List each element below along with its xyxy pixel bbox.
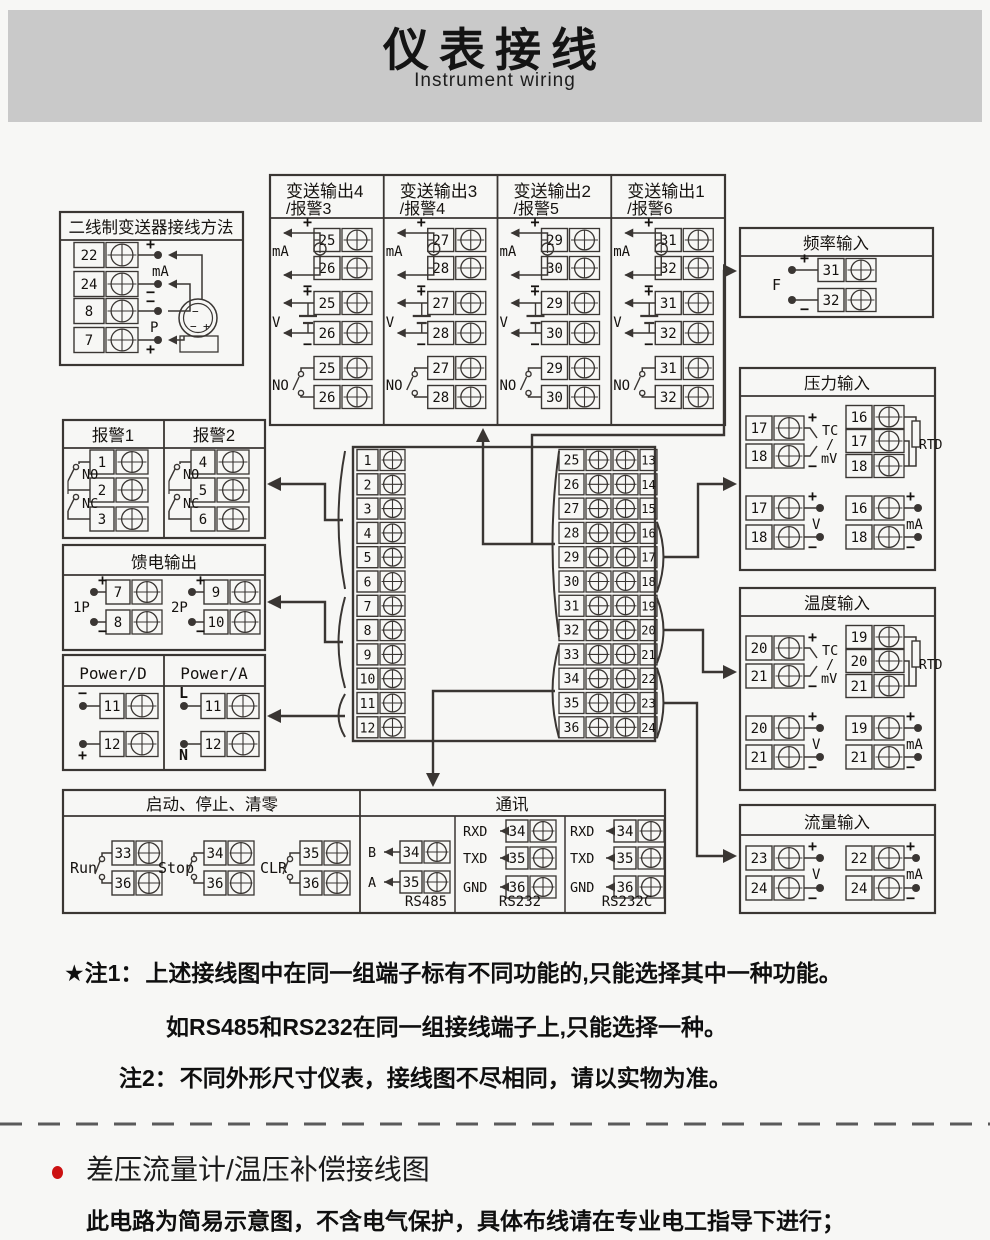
note2-line: 注2：不同外形尺寸仪表，接线图不尽相同，请以实物为准。 <box>119 1059 976 1093</box>
label: + <box>906 707 915 725</box>
terminal-number: 22 <box>641 672 655 686</box>
terminal-number: 9 <box>364 648 372 663</box>
terminal-number: 24 <box>751 881 768 897</box>
wire <box>170 255 202 299</box>
label: − <box>808 538 817 556</box>
signal-arrowhead <box>624 299 633 308</box>
arrowhead <box>723 477 737 491</box>
terminal-number: 7 <box>364 600 372 615</box>
junction-dot <box>154 251 162 259</box>
arrowhead <box>476 428 490 442</box>
wire <box>415 368 428 371</box>
junction-dot <box>816 884 824 892</box>
group-brace <box>657 598 664 663</box>
wire <box>301 396 314 397</box>
wire <box>290 853 300 856</box>
label: mA <box>906 867 923 883</box>
box-title: 启动、停止、清零 <box>146 795 279 814</box>
label: − <box>78 684 87 702</box>
label: V <box>386 315 395 331</box>
label: − <box>808 758 817 776</box>
terminal-number: 36 <box>564 721 580 736</box>
terminal-number: 27 <box>432 233 449 249</box>
terminal-number: 28 <box>432 326 449 342</box>
terminal-number: 30 <box>564 575 580 590</box>
terminal-number: 6 <box>364 576 372 591</box>
signal-arrowhead <box>168 251 177 260</box>
signal-arrowhead <box>511 271 520 280</box>
label: − <box>192 305 199 318</box>
note2-head: 注2： <box>119 1065 178 1091</box>
label: − <box>146 292 155 310</box>
label: − <box>800 300 809 318</box>
signal-arrowhead <box>168 280 177 289</box>
signal-label: TXD <box>570 851 594 867</box>
label: − <box>808 457 817 475</box>
signal-arrowhead <box>397 329 406 338</box>
terminal-number: 12 <box>104 737 121 753</box>
terminal-number: 36 <box>207 876 224 892</box>
terminal-number: 29 <box>546 296 563 312</box>
label: N <box>179 746 188 764</box>
terminal-number: 27 <box>432 296 449 312</box>
wire <box>634 377 640 390</box>
label: L <box>179 684 188 702</box>
terminal-number: 3 <box>98 512 106 528</box>
contact-point <box>298 371 303 376</box>
label: NO <box>183 467 199 483</box>
terminal-number: 27 <box>564 502 580 517</box>
terminal-number: 8 <box>364 624 372 639</box>
terminal-number: 33 <box>115 846 132 862</box>
signal-arrowhead <box>511 329 520 338</box>
label: mV <box>821 451 837 467</box>
terminal-number: 5 <box>199 483 207 499</box>
label: + <box>800 249 809 267</box>
wire <box>804 648 817 658</box>
terminal-number: 17 <box>641 551 655 565</box>
wire <box>904 667 916 686</box>
signal-arrowhead <box>283 271 292 280</box>
label: NC <box>82 496 98 512</box>
terminal-number: 28 <box>432 390 449 406</box>
wire <box>168 284 190 311</box>
terminal-number: 15 <box>641 502 655 516</box>
terminal-number: 16 <box>851 501 868 517</box>
label: + <box>417 282 426 300</box>
note1-line1: ★注1：上述接线图中在同一组端子标有不同功能的,只能选择其中一种功能。 <box>64 954 976 988</box>
terminal-number: 19 <box>851 721 868 737</box>
protocol-label: RS485 <box>405 894 447 910</box>
box-title: 报警1 <box>92 426 134 445</box>
label: NO <box>272 378 289 394</box>
label: mA <box>906 517 923 533</box>
note1-text: 上述接线图中在同一组端子标有不同功能的,只能选择其中一种功能。 <box>145 960 841 986</box>
junction-dot <box>816 724 824 732</box>
wire <box>79 462 90 464</box>
contact-point <box>412 371 417 376</box>
terminal-number: 14 <box>641 478 655 492</box>
terminal-number: 4 <box>364 527 372 542</box>
box-title: 压力输入 <box>804 374 870 393</box>
terminal-number: 18 <box>751 449 768 465</box>
terminal-number: 32 <box>660 390 677 406</box>
terminal-number: 25 <box>319 361 336 377</box>
transmitter-flange <box>180 336 218 352</box>
signal-arrowhead <box>168 336 177 345</box>
wire <box>169 469 175 481</box>
junction-dot <box>816 854 824 862</box>
terminal-number: 23 <box>641 697 655 711</box>
terminal-number: 21 <box>851 750 868 766</box>
contact-point <box>640 371 645 376</box>
label: + <box>906 487 915 505</box>
terminal-number: 34 <box>564 672 580 687</box>
terminal-number: 34 <box>403 845 420 861</box>
terminal-number: 20 <box>751 641 768 657</box>
label: NO <box>500 378 517 394</box>
contact-point <box>174 464 179 469</box>
label: mA <box>906 737 923 753</box>
signal-arrowhead <box>511 229 520 238</box>
note2-text: 不同外形尺寸仪表，接线图不尽相同，请以实物为准。 <box>180 1065 732 1091</box>
terminal-number: 17 <box>751 501 768 517</box>
connector-line <box>433 691 555 782</box>
junction-dot <box>180 702 188 710</box>
caution-text: 此电路为简易示意图，不含电气保护，具体布线请在专业电工指导下进行； <box>86 1202 845 1236</box>
terminal-number: 12 <box>205 737 222 753</box>
wire <box>804 446 817 456</box>
terminal-number: 25 <box>564 454 580 469</box>
label: + <box>98 571 107 589</box>
label: mV <box>821 671 837 687</box>
label: mA <box>272 244 289 260</box>
wire <box>102 880 112 883</box>
note1-head: ★注1： <box>64 960 143 986</box>
protocol-label: RS232 <box>499 894 541 910</box>
terminal-number: 6 <box>199 512 207 528</box>
wire <box>904 661 909 686</box>
terminal-number: 26 <box>564 478 580 493</box>
contact-point <box>73 464 78 469</box>
terminal-number: 16 <box>851 410 868 426</box>
arrowhead <box>267 709 281 723</box>
terminal-number: 1 <box>98 455 106 471</box>
junction-dot <box>816 504 824 512</box>
terminal-number: 11 <box>205 699 222 715</box>
terminal-number: 20 <box>851 654 868 670</box>
connector-line <box>663 630 732 672</box>
contact-point <box>640 390 645 395</box>
label: P <box>150 320 158 336</box>
terminal-number: 8 <box>85 304 93 320</box>
label: + <box>644 213 653 231</box>
junction-dot <box>788 296 796 304</box>
label: + <box>146 235 155 253</box>
label: − <box>906 889 915 907</box>
junction-dot <box>154 280 162 288</box>
terminal-number: 10 <box>208 615 225 631</box>
junction-dot <box>914 504 922 512</box>
terminal-number: 35 <box>303 846 320 862</box>
group-brace <box>657 668 664 738</box>
column-title: 变送输出2 <box>514 182 591 201</box>
wire <box>194 853 204 856</box>
terminal-number: 4 <box>199 455 207 471</box>
arrowhead <box>723 665 737 679</box>
signal-arrowhead <box>384 878 393 887</box>
label: 1P <box>73 600 90 616</box>
terminal-number: 29 <box>546 361 563 377</box>
terminal-number: 30 <box>546 390 563 406</box>
signal-label: B <box>368 845 376 861</box>
box-title: Power/A <box>180 664 248 683</box>
terminal-number: 31 <box>660 296 677 312</box>
label: mA <box>386 244 403 260</box>
label: + <box>203 320 210 333</box>
signal-label: RXD <box>570 824 594 840</box>
label: RTD <box>919 438 943 453</box>
signal-arrowhead <box>397 229 406 238</box>
contact-point <box>298 390 303 395</box>
wire <box>180 462 191 464</box>
signal-arrowhead <box>624 329 633 338</box>
signal-arrowhead <box>397 271 406 280</box>
column-title: 变送输出1 <box>627 182 704 201</box>
label: − <box>906 538 915 556</box>
wire <box>290 880 300 883</box>
wire <box>293 377 299 390</box>
label: − <box>417 335 426 353</box>
signal-arrowhead <box>624 229 633 238</box>
label: − <box>196 622 205 640</box>
terminal-number: 18 <box>851 459 868 475</box>
label: NC <box>183 496 199 512</box>
junction-dot <box>912 854 920 862</box>
terminal-number: 17 <box>851 434 868 450</box>
terminal-number: 26 <box>319 326 336 342</box>
contact-point <box>191 874 196 879</box>
junction-dot <box>154 307 162 315</box>
label: + <box>808 837 817 855</box>
terminal-number: 32 <box>564 624 580 639</box>
junction-dot <box>788 266 796 274</box>
terminal-number: 25 <box>319 233 336 249</box>
arrowhead <box>267 595 281 609</box>
terminal-number: 29 <box>546 233 563 249</box>
signal-arrowhead <box>283 229 292 238</box>
terminal-number: 21 <box>751 669 768 685</box>
junction-dot <box>914 753 922 761</box>
terminal-number: 11 <box>104 699 121 715</box>
contact-point <box>287 874 292 879</box>
signal-arrowhead <box>624 271 633 280</box>
label: − <box>808 677 817 695</box>
label: 2P <box>171 600 188 616</box>
wire <box>642 368 655 371</box>
group-brace <box>553 451 560 637</box>
label: V <box>812 867 821 883</box>
terminal-number: 3 <box>364 503 372 518</box>
label: − <box>644 335 653 353</box>
signal-arrowhead <box>511 299 520 308</box>
terminal-number: 32 <box>823 293 840 309</box>
box-title: 流量输入 <box>804 813 870 832</box>
contact-point <box>73 494 78 499</box>
bullet-icon <box>52 1166 63 1179</box>
label: + <box>303 213 312 231</box>
wire <box>194 880 204 883</box>
label: − <box>906 758 915 776</box>
label: + <box>644 282 653 300</box>
arrowhead <box>723 849 737 863</box>
label: + <box>146 340 155 358</box>
junction-dot <box>816 533 824 541</box>
label: NO <box>82 467 98 483</box>
terminal-number: 30 <box>546 326 563 342</box>
signal-label: RXD <box>463 824 487 840</box>
terminal-number: 34 <box>207 846 224 862</box>
label: − <box>190 320 197 333</box>
signal-label: TXD <box>463 851 487 867</box>
terminal-number: 17 <box>751 421 768 437</box>
terminal-number: 29 <box>564 551 580 566</box>
label: + <box>808 707 817 725</box>
label: RTD <box>919 658 943 673</box>
notes-block: ★注1：上述接线图中在同一组端子标有不同功能的,只能选择其中一种功能。 如RS4… <box>64 954 976 1093</box>
terminal-number: 28 <box>564 526 580 541</box>
box-title: 频率输入 <box>803 234 869 253</box>
wire <box>407 377 413 390</box>
terminal-number: 35 <box>617 851 634 867</box>
box-title: 馈电输出 <box>131 553 197 572</box>
wire <box>904 441 909 466</box>
terminal-number: 26 <box>319 261 336 277</box>
label: + <box>906 837 915 855</box>
wire <box>415 396 428 397</box>
terminal-number: 24 <box>851 881 868 897</box>
wire <box>521 377 527 390</box>
terminal-number: 25 <box>319 296 336 312</box>
group-brace <box>553 645 560 738</box>
label: + <box>417 213 426 231</box>
column-title: 变送输出3 <box>400 182 477 201</box>
label: F <box>772 276 781 294</box>
section-heading: 差压流量计/温压补偿接线图 <box>86 1148 430 1188</box>
junction-dot <box>188 588 196 596</box>
terminal-number: 11 <box>360 697 376 712</box>
contact-point <box>526 371 531 376</box>
label: mA <box>152 264 169 280</box>
junction-dot <box>154 336 162 344</box>
terminal-number: 8 <box>114 615 122 631</box>
terminal-number: 20 <box>751 721 768 737</box>
junction-dot <box>79 702 87 710</box>
signal-arrowhead <box>283 329 292 338</box>
signal-arrowhead <box>283 299 292 308</box>
terminal-number: 7 <box>85 333 93 349</box>
connector-line <box>663 703 732 856</box>
wire <box>904 447 916 466</box>
terminal-number: 18 <box>751 530 768 546</box>
terminal-number: 31 <box>660 361 677 377</box>
contact-point <box>191 856 196 861</box>
terminal-number: 36 <box>303 876 320 892</box>
label: + <box>196 571 205 589</box>
terminal-number: 31 <box>660 233 677 249</box>
label: − <box>98 622 107 640</box>
terminal-number: 21 <box>641 648 655 662</box>
terminal-number: 24 <box>81 277 98 293</box>
label: + <box>808 628 817 646</box>
terminal-number: 24 <box>641 721 655 735</box>
terminal-number: 34 <box>617 824 634 840</box>
terminal-number: 16 <box>641 526 655 540</box>
terminal-number: 31 <box>564 599 580 614</box>
wire <box>169 499 175 511</box>
signal-arrowhead <box>384 848 393 857</box>
label: NO <box>386 378 403 394</box>
terminal-number: 35 <box>509 851 526 867</box>
terminal-number: 20 <box>641 624 655 638</box>
terminal-number: 9 <box>212 585 220 601</box>
junction-dot <box>90 588 98 596</box>
terminal-number: 10 <box>360 673 376 688</box>
junction-dot <box>914 533 922 541</box>
label: V <box>812 737 821 753</box>
junction-dot <box>188 618 196 626</box>
terminal-number: 18 <box>641 575 655 589</box>
page: 仪表接线 Instrument wiring 二线制变送器接线方法222487+… <box>0 0 990 1240</box>
wire <box>804 428 817 438</box>
label: + <box>531 213 540 231</box>
wire <box>804 666 817 676</box>
signal-label: A <box>368 875 376 891</box>
signal-label: GND <box>463 880 487 896</box>
junction-dot <box>914 724 922 732</box>
terminal-number: 28 <box>432 261 449 277</box>
terminal-number: 36 <box>115 876 132 892</box>
wire <box>301 368 314 371</box>
terminal-number: 30 <box>546 261 563 277</box>
label: V <box>500 315 509 331</box>
label: + <box>808 487 817 505</box>
box-title: Power/D <box>79 664 146 683</box>
contact-point <box>99 856 104 861</box>
label: − <box>808 889 817 907</box>
contact-point <box>412 390 417 395</box>
terminal-number: 5 <box>364 551 372 566</box>
connector-line <box>483 433 555 544</box>
terminal-number: 33 <box>564 648 580 663</box>
group-brace <box>657 522 664 592</box>
terminal-number: 2 <box>364 478 372 493</box>
connector-line <box>663 484 732 557</box>
terminal-number: 18 <box>851 530 868 546</box>
junction-dot <box>90 618 98 626</box>
contact-point <box>526 390 531 395</box>
protocol-label: RS232C <box>602 894 653 910</box>
terminal-number: 27 <box>432 361 449 377</box>
switch-label: CLR <box>260 859 288 877</box>
contact-point <box>99 874 104 879</box>
contact-point <box>287 856 292 861</box>
note1-line2: 如RS485和RS232在同一组接线端子上,只能选择一种。 <box>166 1008 976 1042</box>
wire <box>102 853 112 856</box>
label: V <box>272 315 281 331</box>
label: + <box>531 282 540 300</box>
label: − <box>531 335 540 353</box>
